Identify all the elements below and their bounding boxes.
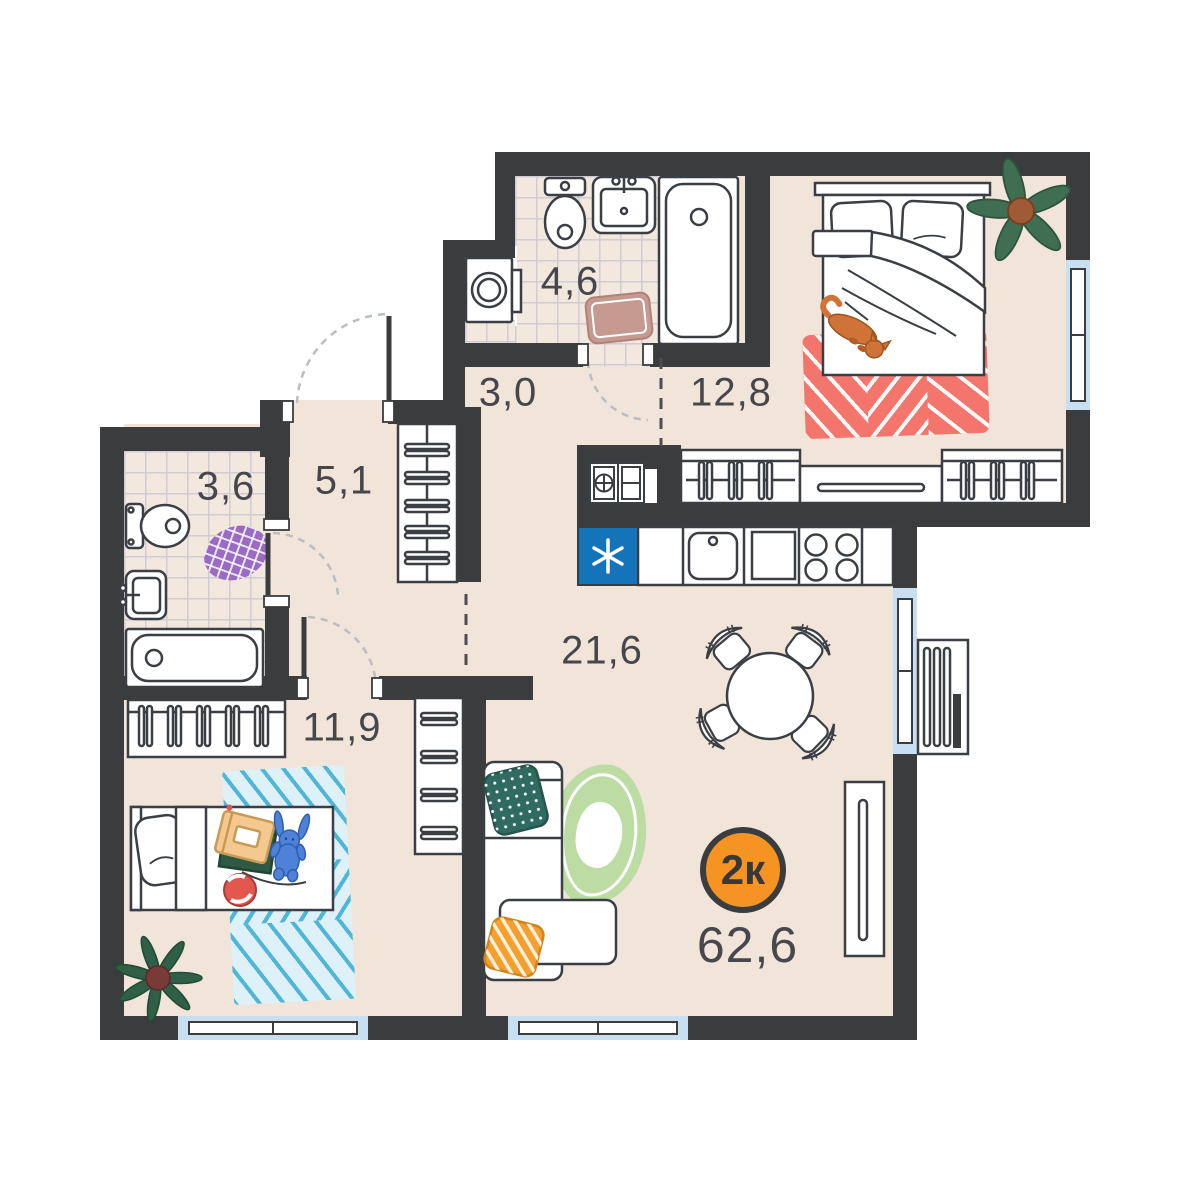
bedroom-wardrobe-right	[942, 450, 1062, 503]
double-bed	[813, 183, 990, 375]
room-area-label-bathroom: 4,6	[541, 260, 600, 305]
room-count-label: 2к	[721, 846, 765, 894]
ac-unit	[918, 640, 968, 754]
washing-machine-icon	[466, 258, 521, 322]
sink-icon	[593, 177, 655, 233]
room-area-label-hallway: 3,0	[479, 371, 538, 416]
furniture-overlay	[0, 0, 1200, 1200]
room-area-label-bedroom: 12,8	[690, 371, 772, 416]
toy-ball	[224, 874, 256, 906]
floor-plan-canvas: 4,6 3,0 12,8 5,1 3,6 11,9 21,6 2к 62,6	[0, 0, 1200, 1200]
room-area-label-living-kitchen: 21,6	[561, 629, 643, 674]
room-area-label-kids-room: 11,9	[303, 706, 382, 751]
room-count-badge: 2к	[700, 827, 786, 913]
plant-kids	[114, 935, 202, 1023]
vanity-cabinet	[590, 463, 644, 503]
corridor-shelving	[398, 424, 457, 582]
room-area-label-corridor: 5,1	[315, 459, 374, 504]
pillow-orange	[482, 915, 545, 978]
toilet-icon	[545, 178, 585, 248]
tv-console	[845, 782, 884, 956]
sink2-icon	[120, 571, 166, 619]
kids-wardrobe	[128, 700, 285, 757]
toilet2-icon	[126, 504, 189, 548]
kitchen-counter	[638, 527, 893, 585]
room-area-label-bathroom-small: 3,6	[197, 465, 256, 510]
bathtub2-icon	[126, 629, 263, 687]
bathtub-icon	[659, 177, 738, 344]
refrigerator-icon	[578, 527, 638, 585]
oven-icon	[752, 532, 795, 579]
total-area-label: 62,6	[675, 916, 820, 974]
kitchen-sink-icon	[689, 533, 737, 579]
dining-set	[692, 619, 843, 766]
bedroom-wardrobe-left	[681, 450, 800, 503]
bedroom-desk	[800, 466, 942, 503]
kids-bookshelf	[415, 698, 463, 854]
